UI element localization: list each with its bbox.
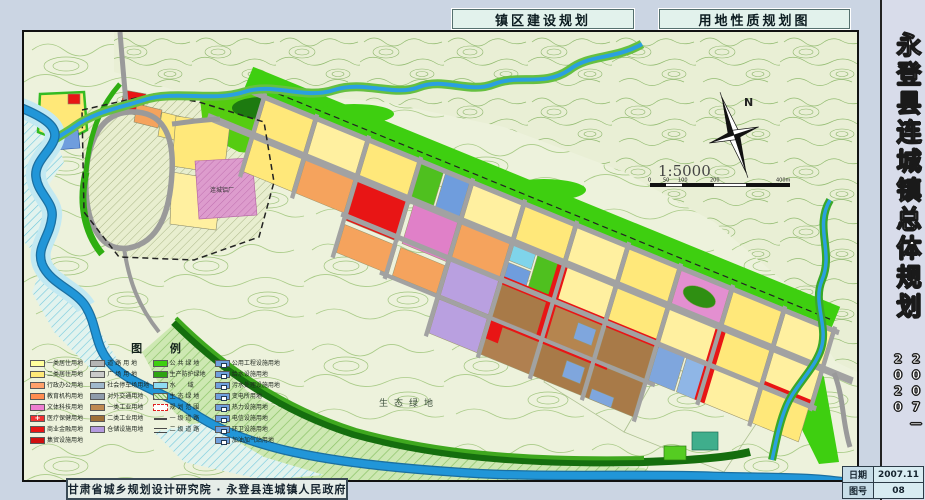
legend-label: 社会停车场用地 (107, 383, 149, 389)
title-tab-landuse-plan: 用地性质规划图 (659, 9, 850, 29)
legend-item: 对外交通用地 (90, 392, 149, 401)
legend-item: 医疗保健用地 (30, 414, 87, 423)
legend-label: 一 级 道 路 (170, 416, 200, 422)
legend-item: 变电所用地 (215, 392, 282, 401)
legend-item: 教育机构用地 (30, 392, 87, 401)
legend-label: 道 路 用 地 (107, 361, 137, 367)
legend-label: 加油加气站用地 (232, 438, 274, 444)
legend-label: 二类居住用地 (47, 372, 83, 378)
legend-swatch (153, 382, 168, 389)
plant-label: 连城铝厂 (210, 186, 234, 194)
legend-label: 规 划 范 围 (170, 405, 200, 411)
legend-item: 水 域 (153, 381, 212, 390)
legend-swatch (90, 371, 105, 378)
legend-swatch (215, 404, 230, 411)
legend-swatch (215, 426, 230, 433)
legend-label: 仓储设施用地 (107, 427, 143, 433)
legend-item: 社会停车场用地 (90, 381, 149, 390)
legend-item: 电信设施用地 (215, 414, 282, 423)
legend-swatch (30, 437, 45, 444)
legend-swatch (153, 371, 168, 378)
svg-text:400m: 400m (776, 178, 791, 184)
footer-credit: 甘肃省城乡规划设计研究院 · 永登县连城镇人民政府 (66, 478, 348, 500)
title-tab-construction-plan: 镇区建设规划 (452, 9, 634, 29)
legend-label: 生产防护绿地 (170, 372, 206, 378)
legend-label: 二 级 道 路 (170, 427, 200, 433)
legend-item: 二 级 道 路 (153, 425, 212, 434)
legend-column-3: 公 共 绿 地 生产防护绿地 水 域 生 态 绿 地 规 划 范 围 一 级 道… (153, 359, 212, 445)
legend-swatch (215, 360, 230, 367)
legend-swatch (90, 404, 105, 411)
legend-label: 广 场 用 地 (107, 372, 137, 378)
date-label: 日期 (843, 467, 874, 483)
legend-swatch (90, 415, 105, 422)
legend-swatch (90, 393, 105, 400)
legend-label: 教育机构用地 (47, 394, 83, 400)
legend-label: 变电所用地 (232, 394, 262, 400)
legend-label: 公用工程设施用地 (232, 361, 280, 367)
legend-swatch (215, 393, 230, 400)
legend-item: 道 路 用 地 (90, 359, 149, 368)
legend-label: 给水设施用地 (232, 372, 268, 378)
legend-column-4: 公用工程设施用地 给水设施用地 污水处理设施用地 变电所用地 热力设施用地 电信… (215, 359, 282, 445)
legend-swatch (153, 415, 168, 422)
legend-label: 公 共 绿 地 (170, 361, 200, 367)
legend-item: 集贸设施用地 (30, 436, 87, 445)
sheet-label: 图号 (843, 483, 874, 499)
legend-item: 文体科技用地 (30, 403, 87, 412)
sidebar-title: 永登县连城镇总体规划 (882, 32, 925, 352)
legend: 图 例 一类居住用地 二类居住用地 行政办公用地 教育机构用地 文体科技用地 医… (30, 340, 282, 472)
legend-item: 一类居住用地 (30, 359, 87, 368)
legend-swatch (90, 360, 105, 367)
legend-label: 生 态 绿 地 (170, 394, 200, 400)
legend-item: 二类工业用地 (90, 414, 149, 423)
legend-swatch (90, 382, 105, 389)
legend-swatch (30, 415, 45, 422)
legend-label: 二类工业用地 (107, 416, 143, 422)
legend-swatch (30, 393, 45, 400)
legend-swatch (30, 360, 45, 367)
legend-item: 污水处理设施用地 (215, 381, 282, 390)
legend-swatch (30, 426, 45, 433)
legend-label: 污水处理设施用地 (232, 383, 280, 389)
legend-item: 广 场 用 地 (90, 370, 149, 379)
legend-label: 热力设施用地 (232, 405, 268, 411)
legend-swatch (153, 404, 168, 411)
legend-label: 电信设施用地 (232, 416, 268, 422)
sheet-value: 08 (874, 483, 924, 499)
sidebar-years: 2007—2020 (882, 352, 925, 436)
legend-swatch (30, 404, 45, 411)
legend-column-2: 道 路 用 地 广 场 用 地 社会停车场用地 对外交通用地 一类工业用地 二类… (90, 359, 149, 445)
legend-item: 仓储设施用地 (90, 425, 149, 434)
legend-swatch (30, 371, 45, 378)
planning-sheet: 生态绿地 连城铝厂 N 1 (0, 0, 925, 500)
legend-swatch (215, 382, 230, 389)
info-row-sheet: 图号 08 (843, 483, 924, 499)
legend-item: 行政办公用地 (30, 381, 87, 390)
legend-swatch (215, 371, 230, 378)
legend-title: 图 例 (30, 340, 282, 356)
legend-label: 一类居住用地 (47, 361, 83, 367)
legend-label: 对外交通用地 (107, 394, 143, 400)
legend-item: 公用工程设施用地 (215, 359, 282, 368)
legend-item: 二类居住用地 (30, 370, 87, 379)
eco-area-label: 生态绿地 (379, 397, 439, 409)
legend-label: 一类工业用地 (107, 405, 143, 411)
map-frame: 生态绿地 连城铝厂 N 1 (22, 30, 859, 482)
svg-text:100: 100 (678, 178, 688, 184)
legend-item: 生产防护绿地 (153, 370, 212, 379)
legend-swatch (153, 393, 168, 400)
legend-label: 文体科技用地 (47, 405, 83, 411)
legend-item: 热力设施用地 (215, 403, 282, 412)
legend-swatch (90, 426, 105, 433)
legend-swatch (153, 426, 168, 433)
legend-item: 商业金融用地 (30, 425, 87, 434)
svg-text:50: 50 (663, 178, 669, 184)
legend-swatch (153, 360, 168, 367)
svg-text:0: 0 (648, 178, 651, 184)
legend-label: 集贸设施用地 (47, 438, 83, 444)
legend-label: 商业金融用地 (47, 427, 83, 433)
date-value: 2007.11 (874, 467, 924, 483)
svg-text:200: 200 (710, 178, 720, 184)
legend-item: 加油加气站用地 (215, 436, 282, 445)
legend-item: 一类工业用地 (90, 403, 149, 412)
legend-label: 环卫设施用地 (232, 427, 268, 433)
info-table: 日期 2007.11 图号 08 (842, 466, 924, 499)
legend-item: 一 级 道 路 (153, 414, 212, 423)
legend-swatch (215, 415, 230, 422)
legend-label: 医疗保健用地 (47, 416, 83, 422)
legend-swatch (30, 382, 45, 389)
legend-item: 规 划 范 围 (153, 403, 212, 412)
legend-item: 生 态 绿 地 (153, 392, 212, 401)
sidebar: 永登县连城镇总体规划 2007—2020 (880, 0, 925, 500)
legend-swatch (215, 437, 230, 444)
legend-label: 行政办公用地 (47, 383, 83, 389)
info-row-date: 日期 2007.11 (843, 467, 924, 483)
legend-item: 环卫设施用地 (215, 425, 282, 434)
legend-item: 给水设施用地 (215, 370, 282, 379)
legend-label: 水 域 (170, 383, 194, 389)
legend-column-1: 一类居住用地 二类居住用地 行政办公用地 教育机构用地 文体科技用地 医疗保健用… (30, 359, 87, 445)
legend-item: 公 共 绿 地 (153, 359, 212, 368)
north-label: N (744, 96, 753, 109)
